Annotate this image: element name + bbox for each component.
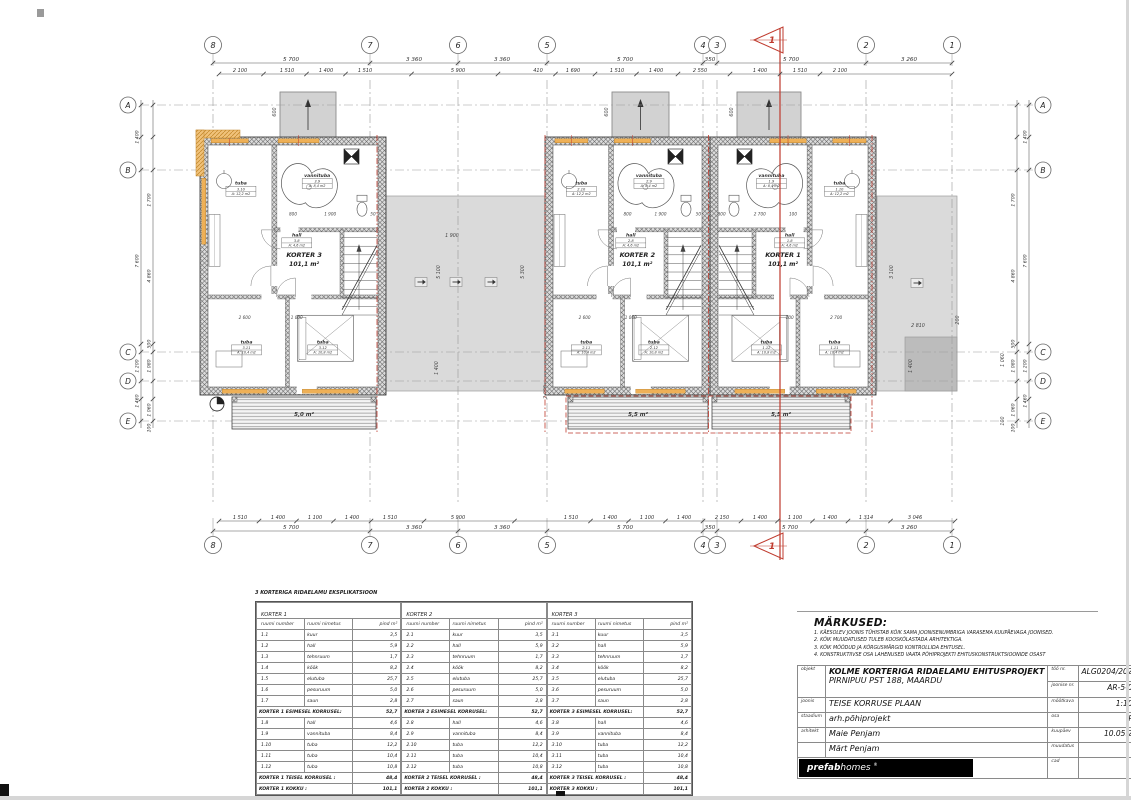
svg-text:1 400: 1 400 bbox=[908, 359, 914, 373]
table-row: 3.12tuba10,8 bbox=[547, 762, 691, 773]
svg-text:2 700: 2 700 bbox=[830, 315, 842, 320]
svg-text:8: 8 bbox=[210, 41, 215, 50]
svg-text:1 000: 1 000 bbox=[625, 315, 637, 320]
svg-text:101,1 m²: 101,1 m² bbox=[289, 261, 319, 268]
svg-text:5 700: 5 700 bbox=[782, 525, 798, 531]
svg-text:B: B bbox=[1040, 166, 1045, 175]
drawing-sheet: 1 9005 3005 1001 4002 0003 1002 8101 400… bbox=[0, 0, 1131, 800]
table-row: 2.9vannituba8,4 bbox=[402, 729, 546, 740]
table-row: 1.11tuba10,4 bbox=[257, 751, 401, 762]
svg-text:1 400: 1 400 bbox=[677, 515, 691, 521]
svg-text:1 460: 1 460 bbox=[135, 394, 141, 407]
svg-text:1 400: 1 400 bbox=[823, 515, 837, 521]
svg-text:1 400: 1 400 bbox=[271, 515, 285, 521]
svg-text:2.12: 2.12 bbox=[650, 346, 659, 350]
table-row: 2.3tehnruum1,7 bbox=[402, 652, 546, 663]
svg-text:1 080: 1 080 bbox=[1011, 359, 1017, 372]
subtotal-row: KORTER 3 ESIMESEL KORRUSEL:52,7 bbox=[547, 707, 691, 718]
svg-text:1.10: 1.10 bbox=[835, 187, 844, 191]
svg-text:3.12: 3.12 bbox=[319, 346, 328, 350]
svg-text:1: 1 bbox=[769, 36, 775, 46]
svg-text:1: 1 bbox=[949, 541, 954, 550]
joonis-value: TEISE KORRUSE PLAAN bbox=[825, 697, 1047, 712]
svg-text:5 900: 5 900 bbox=[451, 515, 465, 521]
svg-text:vannituba: vannituba bbox=[636, 173, 662, 179]
svg-text:2.8: 2.8 bbox=[628, 239, 634, 243]
staadium-label: staadium bbox=[798, 712, 826, 727]
table-row: 3.3tehnruum1,7 bbox=[547, 652, 691, 663]
sheet-edge-bottom bbox=[0, 796, 1131, 800]
note-item: 3. KÕIK MÕÕDUD JA KÕRGUSMÄRGID KONTROLLI… bbox=[814, 646, 1098, 651]
svg-text:3 260: 3 260 bbox=[901, 525, 917, 531]
floor-plan: 1 9005 3005 1001 4002 0003 1002 8101 400… bbox=[0, 0, 1131, 575]
svg-text:1 400: 1 400 bbox=[753, 515, 767, 521]
table-row: 2.2hall5,9 bbox=[402, 641, 546, 652]
svg-text:3 360: 3 360 bbox=[494, 57, 510, 63]
staadium-value: arh.põhiprojekt bbox=[825, 712, 1047, 727]
arhitekt2-value: Märt Penjam bbox=[825, 742, 1047, 757]
svg-text:2 810: 2 810 bbox=[911, 323, 925, 329]
too-nr-value: ALG0204/2021 bbox=[1078, 665, 1131, 681]
svg-text:2 600: 2 600 bbox=[579, 315, 591, 320]
table-row: 2.6pesuruum5,0 bbox=[402, 685, 546, 696]
svg-text:3.9: 3.9 bbox=[314, 180, 320, 184]
note-item: 1. KÄESOLEV JOONIS TÜHISTAB KÕIK SAMA JO… bbox=[814, 631, 1098, 636]
svg-text:A: 8,4 m2: A: 8,4 m2 bbox=[308, 184, 326, 188]
svg-text:1.12: 1.12 bbox=[762, 346, 771, 350]
svg-text:410: 410 bbox=[533, 68, 543, 74]
svg-text:1 510: 1 510 bbox=[280, 68, 294, 74]
table-row: 1.3tehnruum1,7 bbox=[257, 652, 401, 663]
svg-text:1.11: 1.11 bbox=[830, 346, 838, 350]
subtotal-row: KORTER 2 KOKKU :101,1 bbox=[402, 784, 546, 795]
table-row: 2.5elutuba25,7 bbox=[402, 674, 546, 685]
table-row: 2.7saun2,8 bbox=[402, 696, 546, 707]
svg-text:A: 4,6 m2: A: 4,6 m2 bbox=[622, 244, 640, 248]
svg-text:5,5 m²: 5,5 m² bbox=[771, 411, 791, 418]
table-row: 3.8hall4,6 bbox=[547, 718, 691, 729]
mootkava-value: 1:100 bbox=[1078, 697, 1131, 712]
svg-text:100: 100 bbox=[1011, 424, 1017, 433]
svg-text:5,5 m²: 5,5 m² bbox=[628, 411, 648, 418]
svg-text:2: 2 bbox=[863, 541, 868, 550]
svg-text:1 510: 1 510 bbox=[383, 515, 397, 521]
table-row: 2.8hall4,6 bbox=[402, 718, 546, 729]
svg-text:3 260: 3 260 bbox=[901, 57, 917, 63]
svg-text:3 100: 3 100 bbox=[889, 265, 895, 279]
explication-table-korter-3: KORTER 3ruumi numberruumi nimetuspind m²… bbox=[547, 602, 692, 795]
table-row: 1.10tuba12,2 bbox=[257, 740, 401, 751]
table-row: 3.9vannituba8,4 bbox=[547, 729, 691, 740]
svg-text:tuba: tuba bbox=[580, 339, 592, 345]
svg-text:1 690: 1 690 bbox=[566, 68, 580, 74]
svg-text:hall: hall bbox=[785, 232, 795, 238]
svg-text:800: 800 bbox=[289, 212, 297, 217]
svg-text:A: 8,4 m2: A: 8,4 m2 bbox=[640, 184, 658, 188]
muudatus-label: muudatus bbox=[1048, 742, 1078, 757]
svg-text:A: 10,8 m2: A: 10,8 m2 bbox=[756, 351, 776, 355]
floor-plan-root: 1 9005 3005 1001 4002 0003 1002 8101 400… bbox=[120, 27, 1051, 560]
note-item: 2. KÕIK MUUDATUSED TULEB KOOSKÕLASTADA A… bbox=[814, 638, 1098, 643]
svg-text:2 700: 2 700 bbox=[754, 212, 766, 217]
subtotal-row: KORTER 3 KOKKU :101,1 bbox=[547, 784, 691, 795]
svg-text:1: 1 bbox=[949, 41, 954, 50]
table-row: 2.10tuba12,2 bbox=[402, 740, 546, 751]
table-row: 3.2hall5,9 bbox=[547, 641, 691, 652]
svg-text:5: 5 bbox=[544, 41, 549, 50]
svg-text:1 400: 1 400 bbox=[649, 68, 663, 74]
svg-text:1 400: 1 400 bbox=[603, 515, 617, 521]
table-row: 1.2hall5,9 bbox=[257, 641, 401, 652]
svg-text:hall: hall bbox=[626, 232, 636, 238]
svg-text:E: E bbox=[126, 417, 131, 426]
korter-title: KORTER 3 bbox=[547, 603, 691, 619]
table-row: 3.4köök8,2 bbox=[547, 663, 691, 674]
svg-text:1 400: 1 400 bbox=[135, 130, 141, 143]
svg-text:A: A bbox=[1039, 101, 1045, 110]
title-block-table: objekt KOLME KORTERIGA RIDAELAMU EHITUSP… bbox=[797, 665, 1131, 779]
svg-text:101,1 m²: 101,1 m² bbox=[622, 261, 652, 268]
sheet-edge-right bbox=[1126, 0, 1129, 800]
table-row: 3.10tuba12,2 bbox=[547, 740, 691, 751]
svg-text:1 080: 1 080 bbox=[147, 359, 153, 372]
subtotal-row: KORTER 3 TEISEL KORRUSEL :48,4 bbox=[547, 773, 691, 784]
svg-text:1 060: 1 060 bbox=[1011, 403, 1017, 416]
svg-text:1.9: 1.9 bbox=[769, 180, 775, 184]
svg-text:1 100: 1 100 bbox=[788, 515, 802, 521]
svg-text:A: 10,8 m2: A: 10,8 m2 bbox=[644, 351, 664, 355]
svg-text:1 000: 1 000 bbox=[291, 315, 303, 320]
muudatus-value bbox=[1078, 742, 1131, 757]
svg-text:3 046: 3 046 bbox=[908, 515, 922, 521]
svg-text:1 900: 1 900 bbox=[324, 212, 336, 217]
svg-text:A: 10,4 m2: A: 10,4 m2 bbox=[576, 351, 596, 355]
svg-text:800: 800 bbox=[624, 212, 632, 217]
svg-text:50: 50 bbox=[696, 212, 702, 217]
svg-text:1 100: 1 100 bbox=[640, 515, 654, 521]
svg-text:1 314: 1 314 bbox=[859, 515, 873, 521]
osa-label: osa bbox=[1048, 712, 1078, 727]
svg-text:3.11: 3.11 bbox=[242, 346, 250, 350]
svg-text:1 460: 1 460 bbox=[1023, 394, 1029, 407]
table-row: 3.7saun2,8 bbox=[547, 696, 691, 707]
svg-text:A: 12,2 m2: A: 12,2 m2 bbox=[571, 192, 591, 196]
svg-text:1 400: 1 400 bbox=[753, 68, 767, 74]
table-row: 2.12tuba10,8 bbox=[402, 762, 546, 773]
subtotal-row: KORTER 1 TEISEL KORRUSEL :48,4 bbox=[257, 773, 401, 784]
svg-text:3: 3 bbox=[714, 41, 719, 50]
cad-value bbox=[1078, 757, 1131, 778]
svg-text:1 060: 1 060 bbox=[147, 403, 153, 416]
balconies: 5,0 m²5,5 m²5,5 m² bbox=[232, 397, 850, 429]
svg-text:5 700: 5 700 bbox=[617, 57, 633, 63]
svg-text:200: 200 bbox=[955, 315, 961, 324]
svg-text:100: 100 bbox=[786, 315, 794, 320]
svg-text:5 700: 5 700 bbox=[283, 525, 299, 531]
svg-text:tuba: tuba bbox=[834, 181, 846, 187]
svg-text:2 100: 2 100 bbox=[833, 68, 847, 74]
svg-text:1 900: 1 900 bbox=[445, 233, 459, 239]
table-row: 1.4köök8,2 bbox=[257, 663, 401, 674]
svg-text:1 200: 1 200 bbox=[1023, 359, 1029, 372]
svg-text:5 300: 5 300 bbox=[520, 265, 526, 279]
svg-text:1 200: 1 200 bbox=[135, 359, 141, 372]
svg-text:E: E bbox=[1041, 417, 1046, 426]
svg-text:350: 350 bbox=[705, 57, 716, 63]
svg-text:KORTER 2: KORTER 2 bbox=[620, 251, 656, 259]
svg-text:100: 100 bbox=[789, 212, 797, 217]
svg-text:6: 6 bbox=[455, 41, 460, 50]
table-row: 2.11tuba10,4 bbox=[402, 751, 546, 762]
objekt-line1: KOLME KORTERIGA RIDAELAMU EHITUSPROJEKT bbox=[829, 667, 1044, 676]
table-row: 3.1kuur3,5 bbox=[547, 630, 691, 641]
explication-table-korter-2: KORTER 2ruumi numberruumi nimetuspind m²… bbox=[401, 602, 546, 795]
svg-text:600: 600 bbox=[729, 107, 735, 116]
svg-text:A: 4,6 m2: A: 4,6 m2 bbox=[780, 244, 798, 248]
svg-text:5 700: 5 700 bbox=[783, 57, 799, 63]
notes-list: 1. KÄESOLEV JOONIS TÜHISTAB KÕIK SAMA JO… bbox=[814, 631, 1098, 658]
svg-text:5 700: 5 700 bbox=[617, 525, 633, 531]
svg-text:800: 800 bbox=[718, 212, 726, 217]
svg-text:50: 50 bbox=[370, 212, 376, 217]
objekt-line2: PIRNIPUU PST 188, MAARDU bbox=[829, 676, 1044, 685]
notes-section: MÄRKUSED: 1. KÄESOLEV JOONIS TÜHISTAB KÕ… bbox=[797, 611, 1098, 665]
svg-text:1 700: 1 700 bbox=[1011, 193, 1017, 206]
notes-title: MÄRKUSED: bbox=[814, 617, 1098, 629]
table-row: 3.5elutuba25,7 bbox=[547, 674, 691, 685]
svg-text:2.9: 2.9 bbox=[646, 180, 652, 184]
svg-text:KORTER 1: KORTER 1 bbox=[765, 251, 801, 259]
svg-text:4: 4 bbox=[700, 541, 705, 550]
table-row: 3.11tuba10,4 bbox=[547, 751, 691, 762]
svg-text:4: 4 bbox=[700, 41, 705, 50]
svg-text:tuba: tuba bbox=[235, 181, 247, 187]
svg-text:1 700: 1 700 bbox=[147, 193, 153, 206]
table-row: 2.4köök8,2 bbox=[402, 663, 546, 674]
subtotal-row: KORTER 1 ESIMESEL KORRUSEL:52,7 bbox=[257, 707, 401, 718]
svg-text:500: 500 bbox=[147, 340, 153, 349]
svg-text:2: 2 bbox=[863, 41, 868, 50]
table-row: 2.1kuur3,5 bbox=[402, 630, 546, 641]
osa-value: PP bbox=[1078, 712, 1131, 727]
svg-text:3.10: 3.10 bbox=[237, 187, 246, 191]
svg-text:A: 10,4 m2: A: 10,4 m2 bbox=[824, 351, 844, 355]
arhitekt2-label bbox=[798, 742, 826, 757]
kuupaev-label: kuupäev bbox=[1048, 727, 1078, 742]
explication-table-korter-1: KORTER 1ruumi numberruumi nimetuspind m²… bbox=[256, 602, 401, 795]
svg-text:2 100: 2 100 bbox=[233, 68, 247, 74]
svg-text:hall: hall bbox=[292, 232, 302, 238]
table-row: 1.1kuur3,5 bbox=[257, 630, 401, 641]
svg-text:100: 100 bbox=[147, 424, 153, 433]
svg-text:B: B bbox=[125, 166, 130, 175]
svg-text:3 360: 3 360 bbox=[494, 525, 510, 531]
svg-text:2 600: 2 600 bbox=[239, 315, 251, 320]
svg-text:2.11: 2.11 bbox=[582, 346, 590, 350]
svg-text:5 900: 5 900 bbox=[451, 68, 465, 74]
explication-tables: KORTER 1ruumi numberruumi nimetuspind m²… bbox=[255, 601, 693, 796]
svg-text:7 600: 7 600 bbox=[1023, 254, 1029, 267]
svg-text:C: C bbox=[125, 348, 131, 357]
svg-text:D: D bbox=[125, 377, 131, 386]
svg-text:350: 350 bbox=[705, 525, 716, 531]
svg-text:2.10: 2.10 bbox=[577, 187, 586, 191]
svg-text:1 400: 1 400 bbox=[319, 68, 333, 74]
svg-text:A: 10,4 m2: A: 10,4 m2 bbox=[236, 351, 256, 355]
svg-text:A: 4,6 m2: A: 4,6 m2 bbox=[287, 244, 305, 248]
svg-text:1 100: 1 100 bbox=[308, 515, 322, 521]
subtotal-row: KORTER 1 KOKKU :101,1 bbox=[257, 784, 401, 795]
entrance-canopies bbox=[280, 92, 801, 138]
svg-text:4 860: 4 860 bbox=[147, 269, 153, 282]
table-row: 3.6pesuruum5,0 bbox=[547, 685, 691, 696]
svg-text:tuba: tuba bbox=[648, 339, 660, 345]
explication-block: 3 KORTERIGA RIDAELAMU EKSPLIKATSIOON KOR… bbox=[255, 590, 693, 796]
kuupaev-value: 10.05.21 bbox=[1078, 727, 1131, 742]
svg-text:1 510: 1 510 bbox=[564, 515, 578, 521]
joonise-nr-value: AR-5-03 bbox=[1078, 681, 1131, 697]
table-row: 1.8hall4,6 bbox=[257, 718, 401, 729]
svg-text:500: 500 bbox=[1011, 340, 1017, 349]
korter-title: KORTER 2 bbox=[402, 603, 546, 619]
table-row: 1.5elutuba25,7 bbox=[257, 674, 401, 685]
prefabhomes-logo: prefabhomes ® bbox=[799, 759, 973, 777]
svg-text:5,0 m²: 5,0 m² bbox=[294, 411, 314, 418]
joonise-nr-label: joonise nr. bbox=[1048, 681, 1078, 697]
svg-text:1 060: 1 060 bbox=[1000, 353, 1006, 367]
print-mark-top-left bbox=[37, 9, 44, 17]
svg-text:1 510: 1 510 bbox=[793, 68, 807, 74]
svg-text:tuba: tuba bbox=[241, 339, 253, 345]
svg-text:2 150: 2 150 bbox=[715, 515, 729, 521]
svg-text:tuba: tuba bbox=[575, 181, 587, 187]
svg-text:3: 3 bbox=[714, 541, 719, 550]
svg-text:A: A bbox=[124, 101, 130, 110]
objekt-value: KOLME KORTERIGA RIDAELAMU EHITUSPROJEKT … bbox=[825, 665, 1047, 697]
note-item: 4. KONSTRUKTIIVSE OSA LAHENUSED VAATA PÕ… bbox=[814, 653, 1098, 658]
svg-text:1: 1 bbox=[769, 542, 775, 552]
svg-text:3 360: 3 360 bbox=[406, 525, 422, 531]
cad-label: cad bbox=[1048, 757, 1078, 778]
svg-text:101,1 m²: 101,1 m² bbox=[768, 261, 798, 268]
arhitekt-label: arhitekt bbox=[798, 727, 826, 742]
svg-text:A: 8,4 m2: A: 8,4 m2 bbox=[762, 184, 780, 188]
svg-text:1 400: 1 400 bbox=[434, 361, 440, 375]
svg-text:A: 12,2 m2: A: 12,2 m2 bbox=[829, 192, 849, 196]
logo-cell: prefabhomes ® bbox=[798, 757, 1048, 778]
svg-text:tuba: tuba bbox=[317, 339, 329, 345]
svg-text:600: 600 bbox=[604, 107, 610, 116]
svg-text:1.8: 1.8 bbox=[787, 239, 793, 243]
svg-text:1 400: 1 400 bbox=[345, 515, 359, 521]
subtotal-row: KORTER 2 ESIMESEL KORRUSEL:52,7 bbox=[402, 707, 546, 718]
svg-text:1 900: 1 900 bbox=[655, 212, 667, 217]
table-row: 1.12tuba10,8 bbox=[257, 762, 401, 773]
table-row: 1.9vannituba8,4 bbox=[257, 729, 401, 740]
svg-text:A: 10,8 m2: A: 10,8 m2 bbox=[312, 351, 332, 355]
svg-text:8: 8 bbox=[210, 541, 215, 550]
svg-text:6: 6 bbox=[455, 541, 460, 550]
svg-text:1 510: 1 510 bbox=[358, 68, 372, 74]
svg-text:2 550: 2 550 bbox=[693, 68, 707, 74]
svg-text:D: D bbox=[1040, 377, 1046, 386]
svg-text:1 510: 1 510 bbox=[610, 68, 624, 74]
title-block: MÄRKUSED: 1. KÄESOLEV JOONIS TÜHISTAB KÕ… bbox=[797, 611, 1098, 779]
mootkava-label: mõõtkava bbox=[1048, 697, 1078, 712]
north-symbol bbox=[210, 397, 224, 411]
svg-text:3.8: 3.8 bbox=[294, 239, 300, 243]
joonis-label: joonis bbox=[798, 697, 826, 712]
svg-text:5 700: 5 700 bbox=[283, 57, 299, 63]
svg-text:A: 12,2 m2: A: 12,2 m2 bbox=[231, 192, 251, 196]
svg-text:7 600: 7 600 bbox=[135, 254, 141, 267]
arhitekt1-value: Maie Penjam bbox=[825, 727, 1047, 742]
svg-text:5 100: 5 100 bbox=[436, 265, 442, 279]
svg-text:1 510: 1 510 bbox=[233, 515, 247, 521]
svg-text:600: 600 bbox=[272, 107, 278, 116]
explication-title: 3 KORTERIGA RIDAELAMU EKSPLIKATSIOON bbox=[255, 590, 693, 596]
svg-text:tuba: tuba bbox=[829, 339, 841, 345]
table-row: 1.7saun2,8 bbox=[257, 696, 401, 707]
svg-text:tuba: tuba bbox=[761, 339, 773, 345]
svg-text:5: 5 bbox=[544, 541, 549, 550]
svg-text:4 860: 4 860 bbox=[1011, 269, 1017, 282]
svg-text:vannituba: vannituba bbox=[304, 173, 330, 179]
svg-text:KORTER 3: KORTER 3 bbox=[286, 251, 322, 259]
svg-text:C: C bbox=[1040, 348, 1046, 357]
korter-title: KORTER 1 bbox=[257, 603, 401, 619]
subtotal-row: KORTER 2 TEISEL KORRUSEL :48,4 bbox=[402, 773, 546, 784]
table-row: 1.6pesuruum5,0 bbox=[257, 685, 401, 696]
svg-text:1 400: 1 400 bbox=[1023, 130, 1029, 143]
objekt-label: objekt bbox=[798, 665, 826, 697]
svg-text:3 360: 3 360 bbox=[406, 57, 422, 63]
too-nr-label: töö nr. bbox=[1048, 665, 1078, 681]
